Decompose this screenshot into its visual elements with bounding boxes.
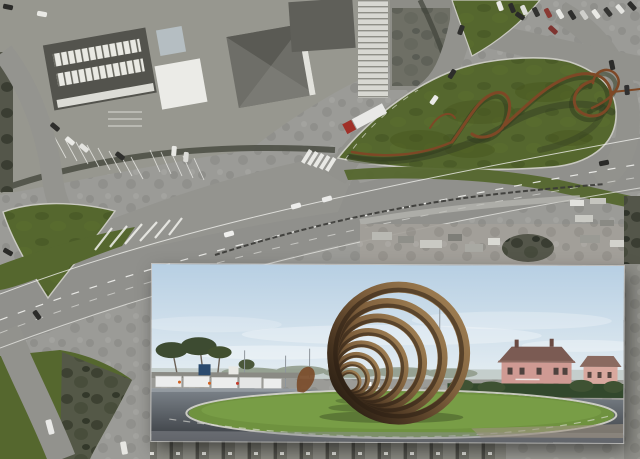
bottom-warehouse (150, 440, 506, 459)
building-dark-shed (288, 0, 355, 52)
roundabout-render (151, 264, 624, 443)
building-ribbed-shed-vertical (358, 0, 388, 98)
building-small-blue (156, 26, 186, 56)
building-white-flat (155, 58, 208, 109)
white-sign (229, 366, 239, 374)
right-sliver-texture (624, 264, 640, 459)
blue-sign (199, 364, 211, 375)
right-edge-trees (624, 196, 640, 266)
vehicle (624, 85, 630, 95)
vehicle (171, 146, 177, 156)
photomontage-image (0, 0, 640, 459)
inset-render (151, 264, 624, 443)
vehicle (183, 152, 189, 162)
yard-trees (502, 234, 554, 262)
